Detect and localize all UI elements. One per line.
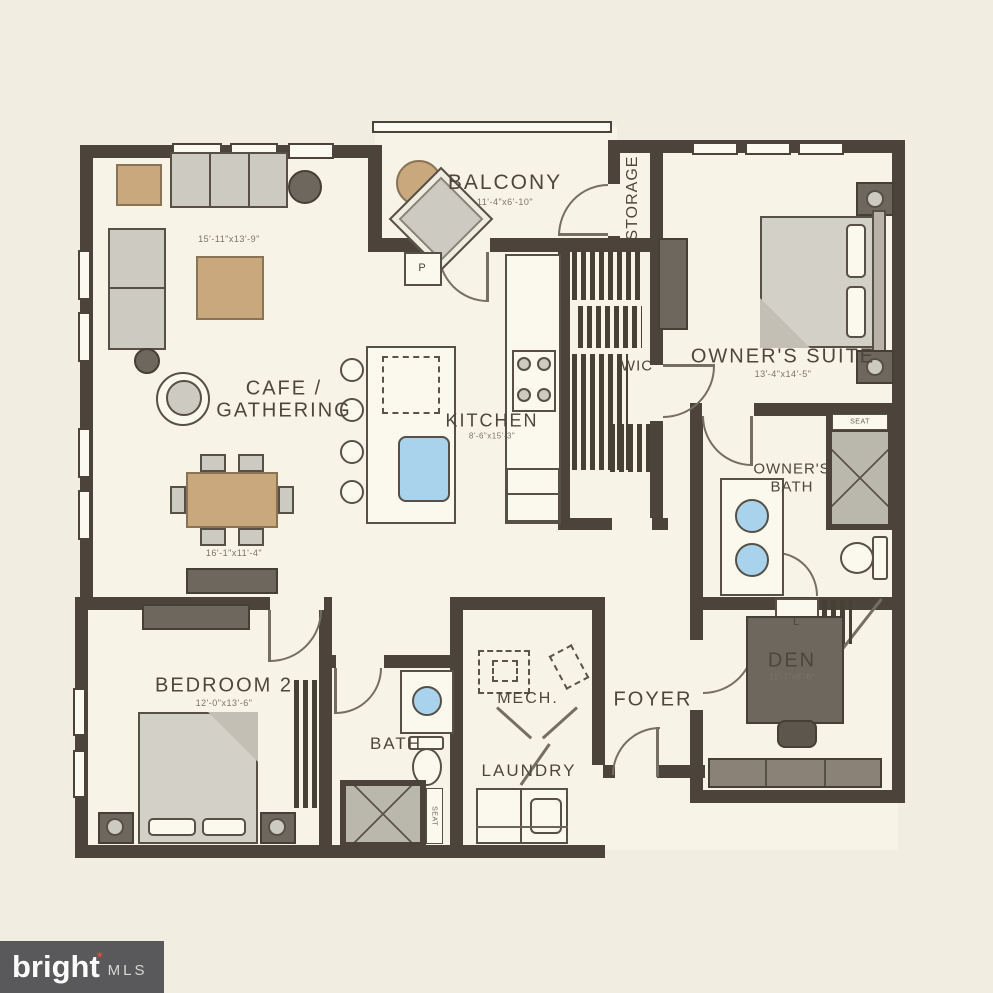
kitchen-label: KITCHEN [445, 411, 538, 432]
bath2-label: BATH [370, 734, 422, 754]
burner-1 [517, 357, 531, 371]
wall-bottom-bedroom [75, 845, 332, 858]
door-leaf-owner-bath [750, 416, 753, 466]
kitchen-dim: 8'-6"x15'-3" [469, 432, 515, 441]
bedroom2-lamp-2 [268, 818, 286, 836]
linen-label: L [793, 616, 801, 628]
swivel-chair-seat [166, 380, 202, 416]
floor-plan-page: { "colors":{"wall":"#4c443a","floor":"#f… [0, 0, 993, 993]
dining-chair-left [170, 486, 186, 514]
dining-chair-bottom-2 [238, 528, 264, 546]
gap-bedroom2-door [270, 597, 324, 610]
window-owner-top-3 [798, 142, 844, 155]
gap-owner-bath-door [702, 403, 754, 416]
wall-mech-top [450, 597, 605, 610]
window-owner-top-1 [692, 142, 738, 155]
refrigerator-door-line [506, 493, 560, 495]
door-leaf-bath2 [334, 668, 337, 714]
window-bedroom-left-2 [73, 750, 86, 798]
laundry-label: LAUNDRY [482, 761, 577, 781]
owner-blanket-fold [760, 298, 810, 348]
bath2-shower-seat-label: SEAT [431, 806, 438, 826]
owner-toilet-tank [872, 536, 888, 580]
wic-label: WIC [621, 358, 653, 375]
tv-console [186, 568, 278, 594]
washer-dryer-line [476, 826, 568, 828]
dining-chair-top-1 [200, 454, 226, 472]
wall-bottom-den [690, 790, 905, 803]
window-living-left-4 [78, 490, 91, 540]
owners-bath-label-line2: BATH [771, 479, 814, 496]
brightmls-logo: bright * MLS [0, 941, 164, 993]
window-living-top-3 [288, 143, 334, 159]
side-table [116, 164, 162, 206]
door-leaf-entry [656, 727, 659, 777]
balcony-railing [372, 121, 612, 133]
bedroom2-closet-rod [294, 680, 320, 808]
burner-3 [517, 388, 531, 402]
owner-toilet-bowl [840, 542, 874, 574]
mech-label: MECH. [497, 690, 559, 708]
door-leaf-storage [558, 233, 608, 236]
window-living-left-2 [78, 312, 91, 362]
den-sofa [708, 758, 882, 788]
bedroom2-blanket-fold [208, 712, 258, 762]
door-leaf-balcony-kitchen [486, 252, 489, 302]
gap-wic-door [612, 518, 652, 530]
bath2-shower-tile [346, 786, 420, 842]
bedroom2-lamp-1 [106, 818, 124, 836]
owner-headboard [872, 210, 886, 354]
den-chair [777, 720, 817, 748]
window-living-left-3 [78, 428, 91, 478]
mech-equipment-inner [492, 660, 518, 682]
window-owner-top-2 [745, 142, 791, 155]
dining-table [186, 472, 278, 528]
sofa [170, 152, 288, 208]
bedroom2-label: BEDROOM 2 [155, 675, 293, 698]
burner-2 [537, 357, 551, 371]
owner-shower-seat-label: SEAT [850, 419, 870, 426]
wic-closet-rod-4 [610, 424, 650, 472]
logo-brand-text: bright [12, 949, 100, 985]
owners-suite-label: OWNER'S SUITE [691, 346, 875, 369]
cafe-label-line1: CAFE / [246, 378, 322, 401]
plant-table-icon [288, 170, 322, 204]
wall-bedroom-right [319, 597, 332, 858]
owner-pillow-1 [846, 224, 866, 278]
bedroom2-dim: 12'-0"x13'-6" [196, 698, 253, 708]
refrigerator [506, 468, 560, 522]
bath2-sink [412, 686, 442, 716]
sofa-seam-2 [248, 154, 250, 206]
dining-chair-bottom-1 [200, 528, 226, 546]
door-leaf-bedroom2 [268, 610, 271, 662]
bar-stool-1 [340, 358, 364, 382]
cafe-label-line2: GATHERING [216, 400, 351, 423]
den-sofa-seam-2 [824, 760, 826, 786]
den-dim: 11'-7"x8'-6" [769, 673, 815, 682]
kitchen-sink [398, 436, 450, 502]
chaise-lounge [108, 228, 166, 350]
dining-dim: 16'-1"x11'-4" [206, 548, 262, 558]
burner-4 [537, 388, 551, 402]
storage-label: STORAGE [624, 156, 642, 241]
owner-shower-tile [832, 432, 888, 524]
logo-suffix-text: MLS [108, 962, 148, 979]
bedroom2-pillow-2 [202, 818, 246, 836]
wic-closet-rod-2 [578, 306, 642, 348]
wic-closet-rod-1 [572, 252, 644, 300]
wall-ownerbath-left [690, 403, 703, 610]
chaise-seam [110, 287, 164, 289]
gap-bath2-door [336, 655, 384, 668]
den-sofa-seam-1 [765, 760, 767, 786]
window-living-left-1 [78, 250, 91, 300]
wall-mech-right [592, 597, 605, 765]
wall-owner-left-lower [650, 421, 663, 530]
owner-lamp-1 [866, 190, 884, 208]
owner-sink-1 [735, 499, 769, 533]
owner-vanity [720, 478, 784, 596]
logo-asterisk-icon: * [97, 949, 103, 966]
foyer-label: FOYER [614, 689, 693, 712]
balcony-label: BALCONY [448, 171, 562, 195]
pantry-label: P [418, 262, 427, 274]
den-label: DEN [768, 650, 816, 673]
dining-chair-top-2 [238, 454, 264, 472]
bar-stool-3 [340, 440, 364, 464]
owner-pillow-2 [846, 286, 866, 338]
bedroom2-pillow-1 [148, 818, 196, 836]
sofa-seam-1 [209, 154, 211, 206]
balcony-dim: 11'-4"x6'-10" [477, 197, 533, 207]
island-dashed-zone [382, 356, 440, 414]
window-bedroom-left-1 [73, 688, 86, 736]
owner-sink-2 [735, 543, 769, 577]
washer-dryer-divider [520, 788, 522, 844]
owner-dresser [658, 238, 688, 330]
bar-stool-4 [340, 480, 364, 504]
owners-bath-label-line1: OWNER'S [753, 461, 830, 478]
living-dim: 15'-11"x13'-9" [198, 234, 260, 244]
dining-chair-right [278, 486, 294, 514]
wall-balcony-left [368, 145, 382, 252]
dryer-door [530, 798, 562, 834]
owners-suite-dim: 13'-4"x14'-5" [755, 369, 812, 379]
gap-storage-door [608, 184, 620, 236]
ottoman-rug [196, 256, 264, 320]
bedroom2-dresser [142, 604, 250, 630]
plant-icon [134, 348, 160, 374]
